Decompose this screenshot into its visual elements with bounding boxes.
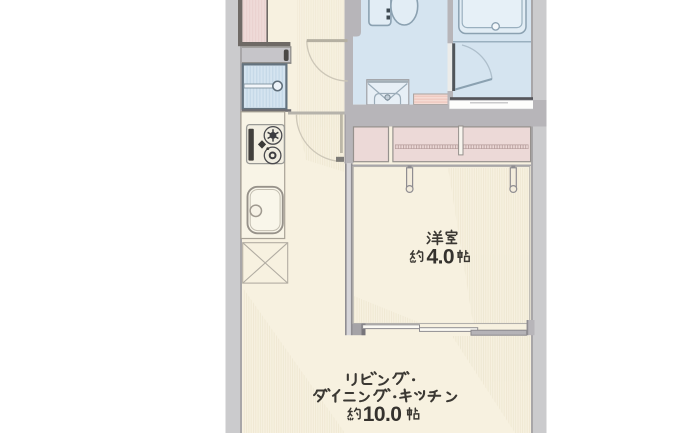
svg-text:4.0: 4.0 [427,246,454,269]
svg-text:10.0: 10.0 [363,403,401,426]
